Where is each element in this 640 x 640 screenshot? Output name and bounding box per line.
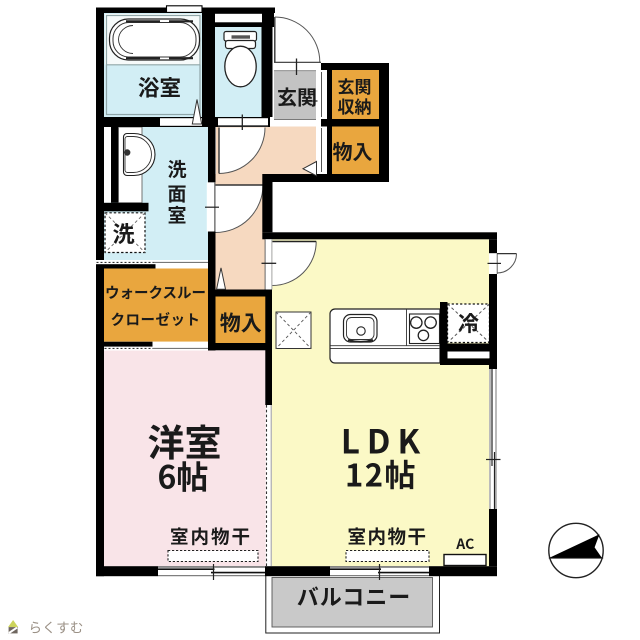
svg-text:玄関: 玄関 bbox=[277, 82, 317, 111]
svg-text:AC: AC bbox=[455, 534, 474, 554]
svg-text:室内物干: 室内物干 bbox=[347, 524, 427, 550]
svg-text:物入: 物入 bbox=[220, 308, 262, 338]
svg-text:室: 室 bbox=[167, 201, 186, 228]
svg-text:冷: 冷 bbox=[458, 308, 479, 338]
svg-text:バルコニー: バルコニー bbox=[297, 580, 412, 612]
svg-text:クローゼット: クローゼット bbox=[111, 309, 201, 330]
svg-text:室内物干: 室内物干 bbox=[170, 524, 252, 550]
svg-text:12帖: 12帖 bbox=[345, 451, 417, 496]
svg-text:収納: 収納 bbox=[338, 93, 372, 118]
svg-text:らくすむ: らくすむ bbox=[29, 617, 84, 637]
svg-text:物入: 物入 bbox=[333, 136, 373, 165]
svg-text:浴室: 浴室 bbox=[138, 72, 181, 103]
svg-text:6帖: 6帖 bbox=[158, 453, 209, 499]
svg-text:洗: 洗 bbox=[112, 217, 134, 249]
svg-text:ウォークスルー: ウォークスルー bbox=[105, 282, 206, 303]
svg-text:洗: 洗 bbox=[167, 155, 186, 182]
